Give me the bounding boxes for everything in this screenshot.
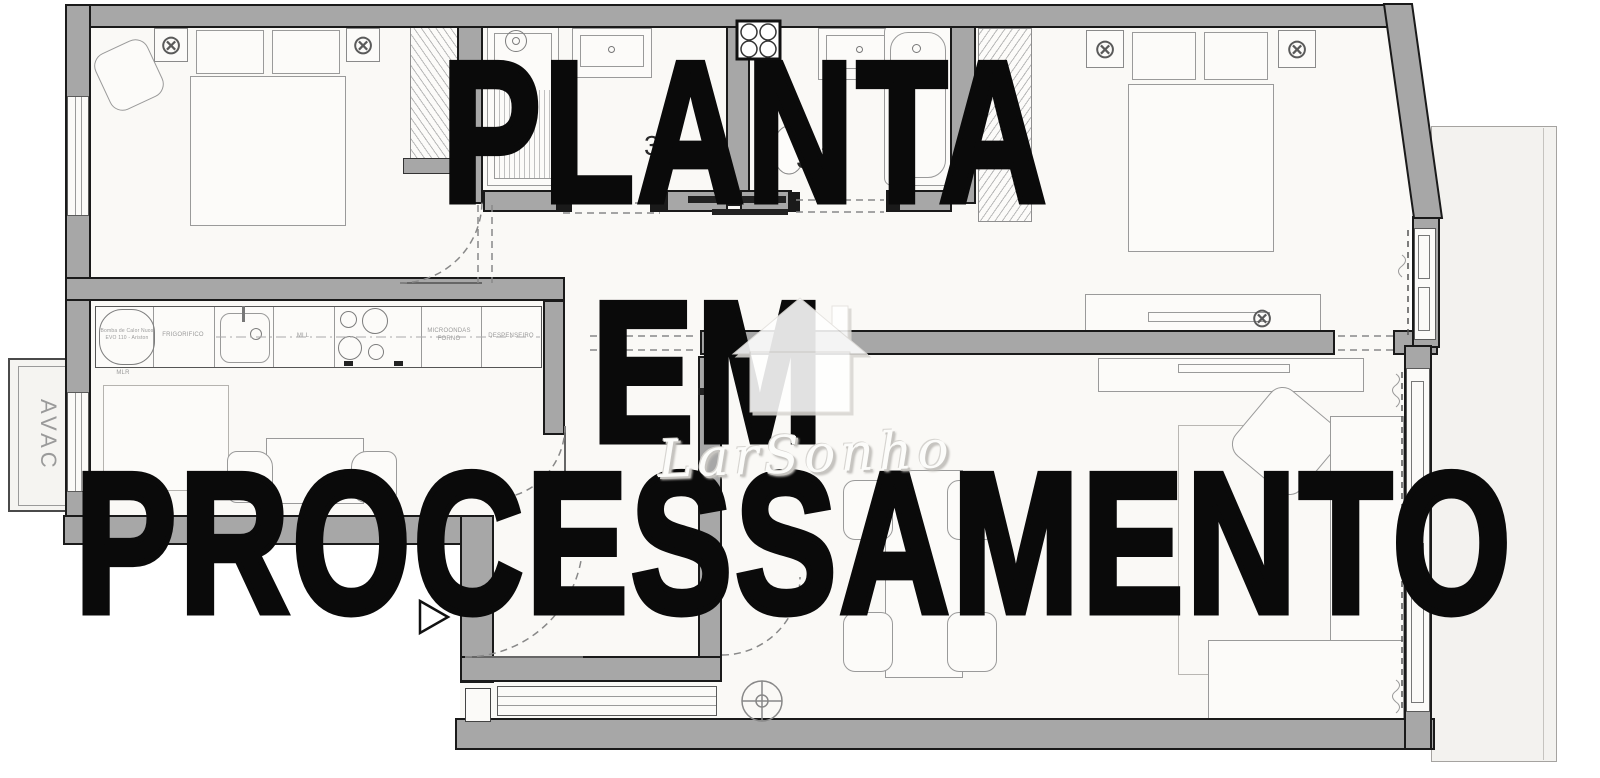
curtain-squiggle [1393, 374, 1400, 407]
larsonho-house-icon [720, 292, 880, 417]
larsonho-script-logo: LarSonho [657, 420, 955, 490]
wall-bed2-right-slanted [1384, 4, 1442, 218]
opening-dashed [1338, 336, 1396, 350]
curtain-squiggle [1399, 255, 1406, 277]
floor-plan: AVAC ⊗ ⊗ [0, 0, 1600, 778]
watermark-line-1: PLANTA [442, 33, 1049, 233]
curtain-squiggle [1393, 680, 1400, 713]
